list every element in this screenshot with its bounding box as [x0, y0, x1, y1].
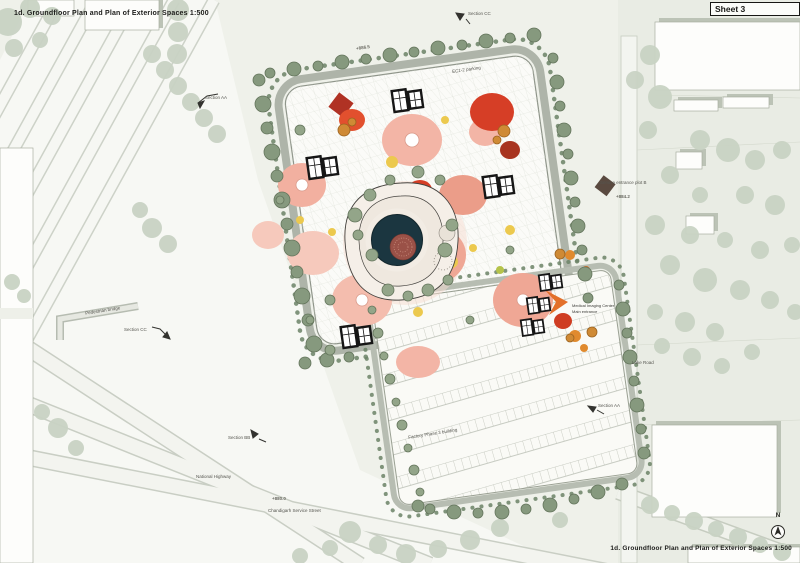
left-building-strip [0, 148, 33, 563]
security-kiosk-b [595, 175, 616, 196]
north-arrow-icon [772, 526, 785, 539]
site-plan-sheet: 1d. Groundfloor Plan and Plan of Exterio… [0, 0, 800, 563]
site-plan-drawing [0, 0, 800, 563]
central-hub [345, 183, 458, 300]
north-compass: N [768, 512, 788, 519]
sheet-number-label: Sheet 3 [710, 2, 800, 16]
north-letter: N [768, 512, 788, 519]
